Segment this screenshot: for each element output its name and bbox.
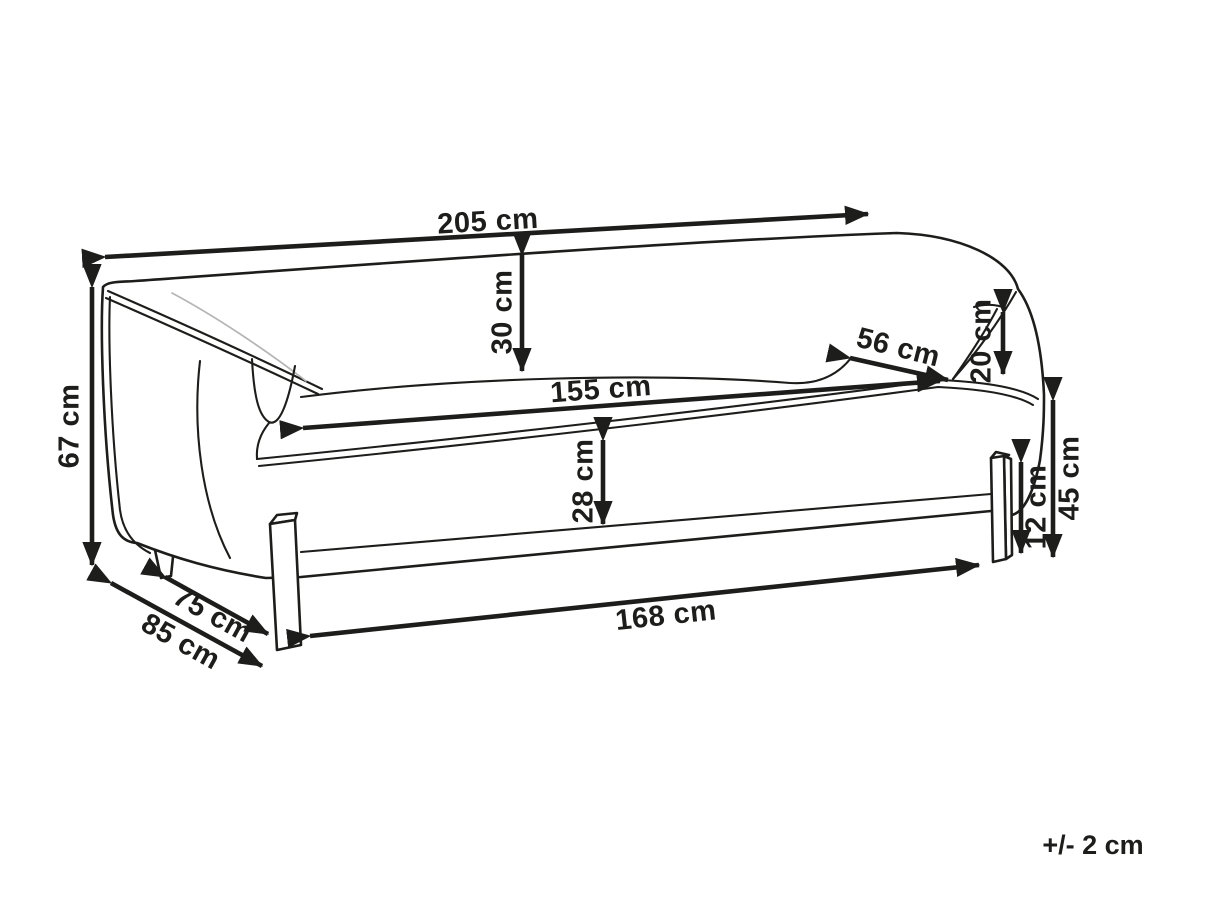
dim-label-backrest-height: 30 cm — [487, 270, 519, 355]
dim-label-overall-width: 205 cm — [436, 203, 539, 241]
dim-label-seat-height: 45 cm — [1054, 436, 1086, 521]
dim-label-seat-front-height: 28 cm — [568, 439, 600, 524]
tolerance-note: +/- 2 cm — [1042, 830, 1143, 860]
dim-label-leg-clearance: 12 cm — [1021, 465, 1053, 550]
sofa-dimension-diagram: 205 cm 30 cm 56 cm 20 cm 155 cm 67 cm 28… — [0, 0, 1214, 911]
dim-label-armrest-height: 20 cm — [966, 299, 998, 384]
diagram-canvas: 205 cm 30 cm 56 cm 20 cm 155 cm 67 cm 28… — [0, 0, 1214, 911]
sofa-front-right-leg — [991, 452, 1012, 562]
dim-label-overall-height: 67 cm — [54, 384, 86, 469]
sofa-front-left-leg — [270, 513, 301, 650]
